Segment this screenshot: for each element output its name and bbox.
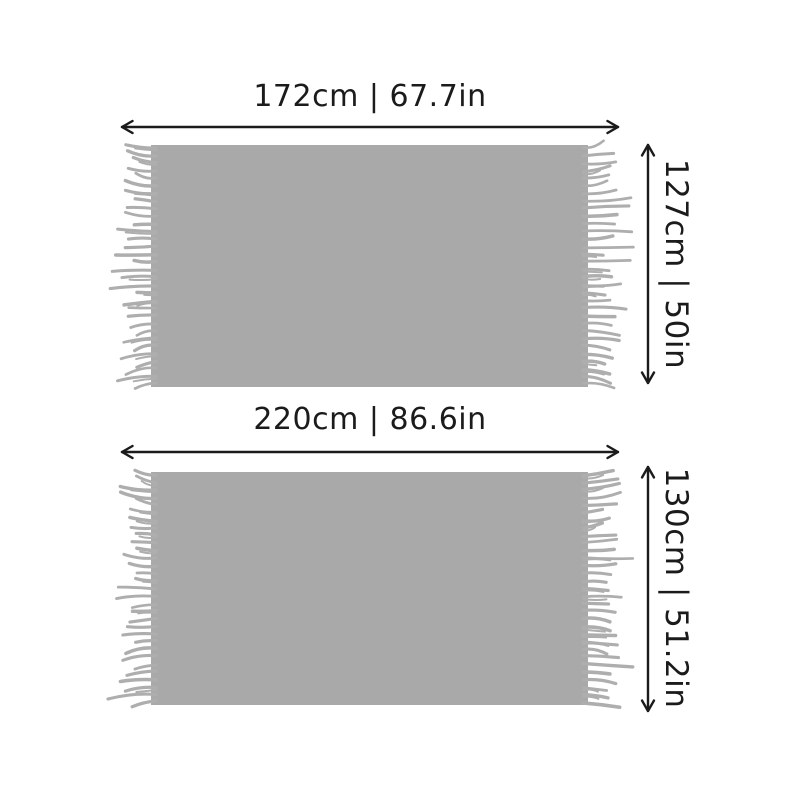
height-double-arrow-icon [638,461,658,717]
height-double-arrow-icon [638,139,658,389]
blanket-graphic [105,138,665,396]
width-double-arrow-icon [116,442,624,462]
width-dimension-label: 172cm | 67.7in [120,80,620,114]
width-double-arrow-icon [116,117,624,137]
size-chart: 172cm | 67.7in 127cm | 50in 220cm | 86.6… [0,0,800,800]
height-dimension-label: 130cm | 51.2in [658,468,694,709]
height-dimension-label: 127cm | 50in [658,159,694,369]
width-dimension-label: 220cm | 86.6in [120,403,620,437]
blanket-graphic [105,462,665,720]
